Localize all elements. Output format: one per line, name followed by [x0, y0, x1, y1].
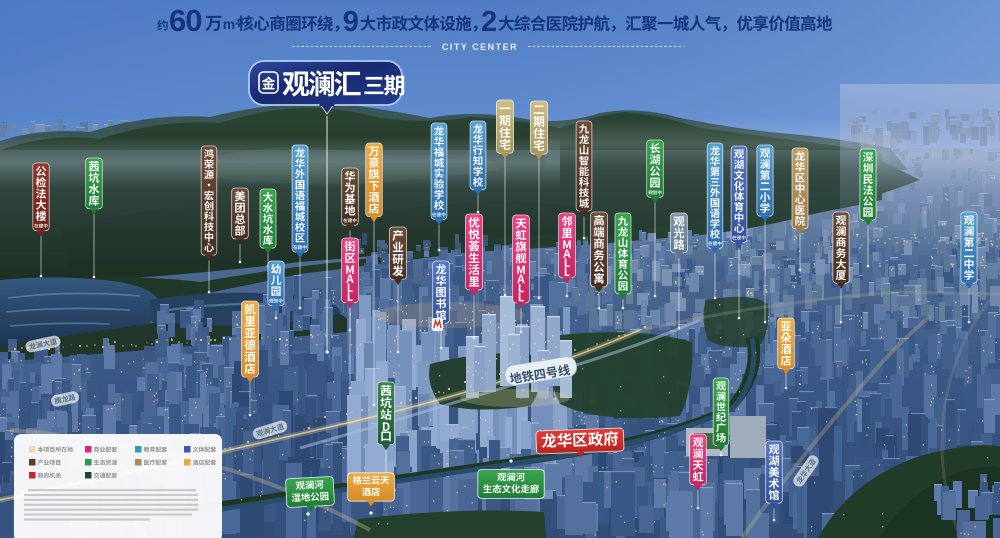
svg-text:m²: m² — [223, 16, 240, 32]
svg-text:9: 9 — [343, 6, 359, 38]
svg-text:2: 2 — [481, 6, 497, 38]
svg-text:60: 60 — [169, 3, 201, 38]
svg-text:CITY CENTER: CITY CENTER — [442, 42, 518, 52]
